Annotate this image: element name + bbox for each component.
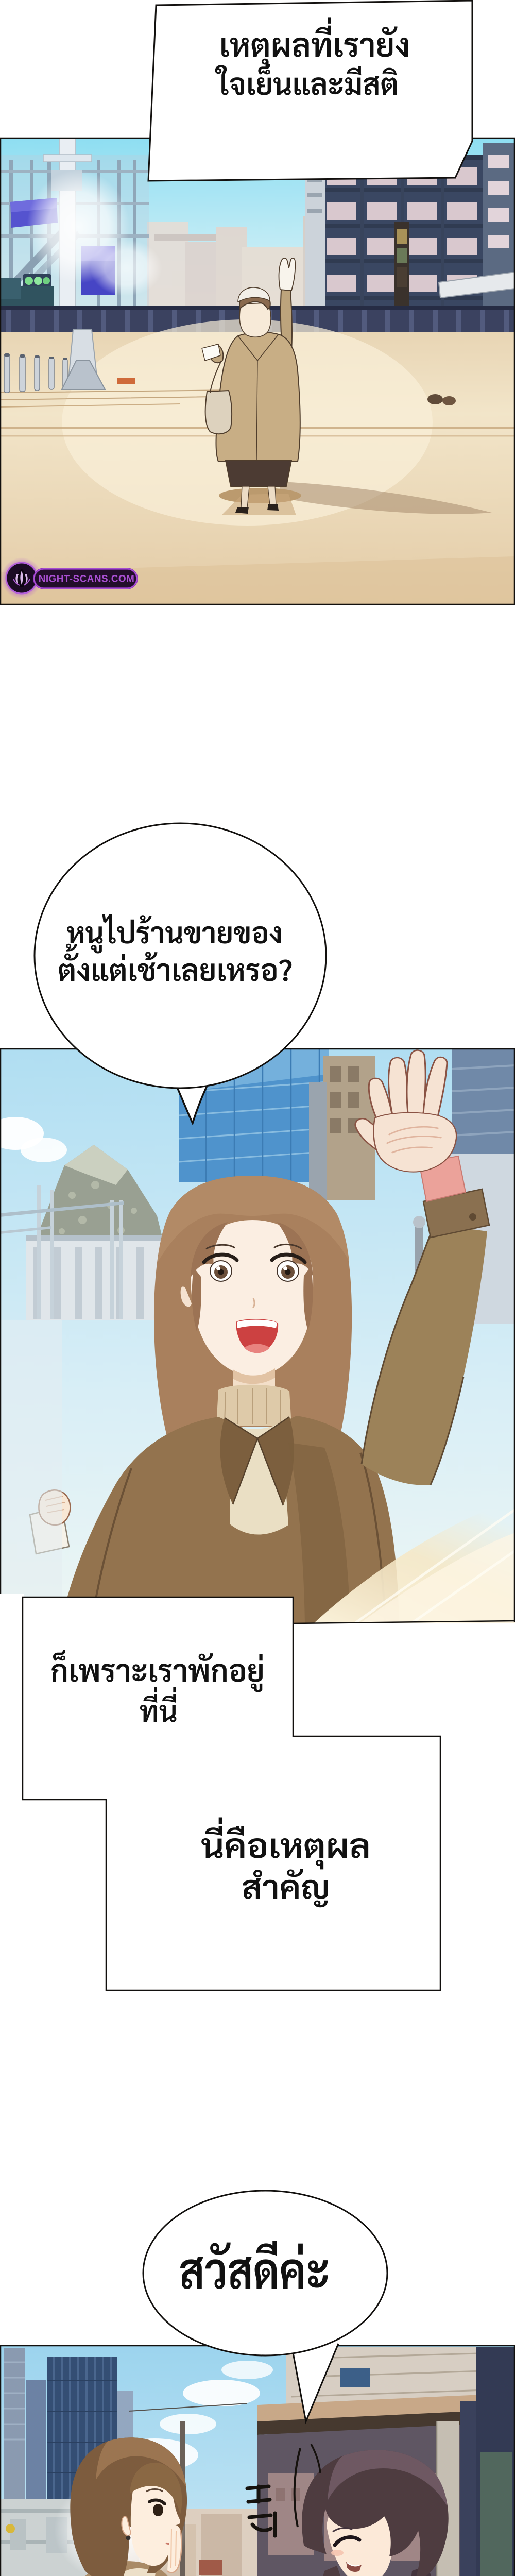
svg-text:NIGHT-SCANS.COM: NIGHT-SCANS.COM [39, 574, 135, 585]
